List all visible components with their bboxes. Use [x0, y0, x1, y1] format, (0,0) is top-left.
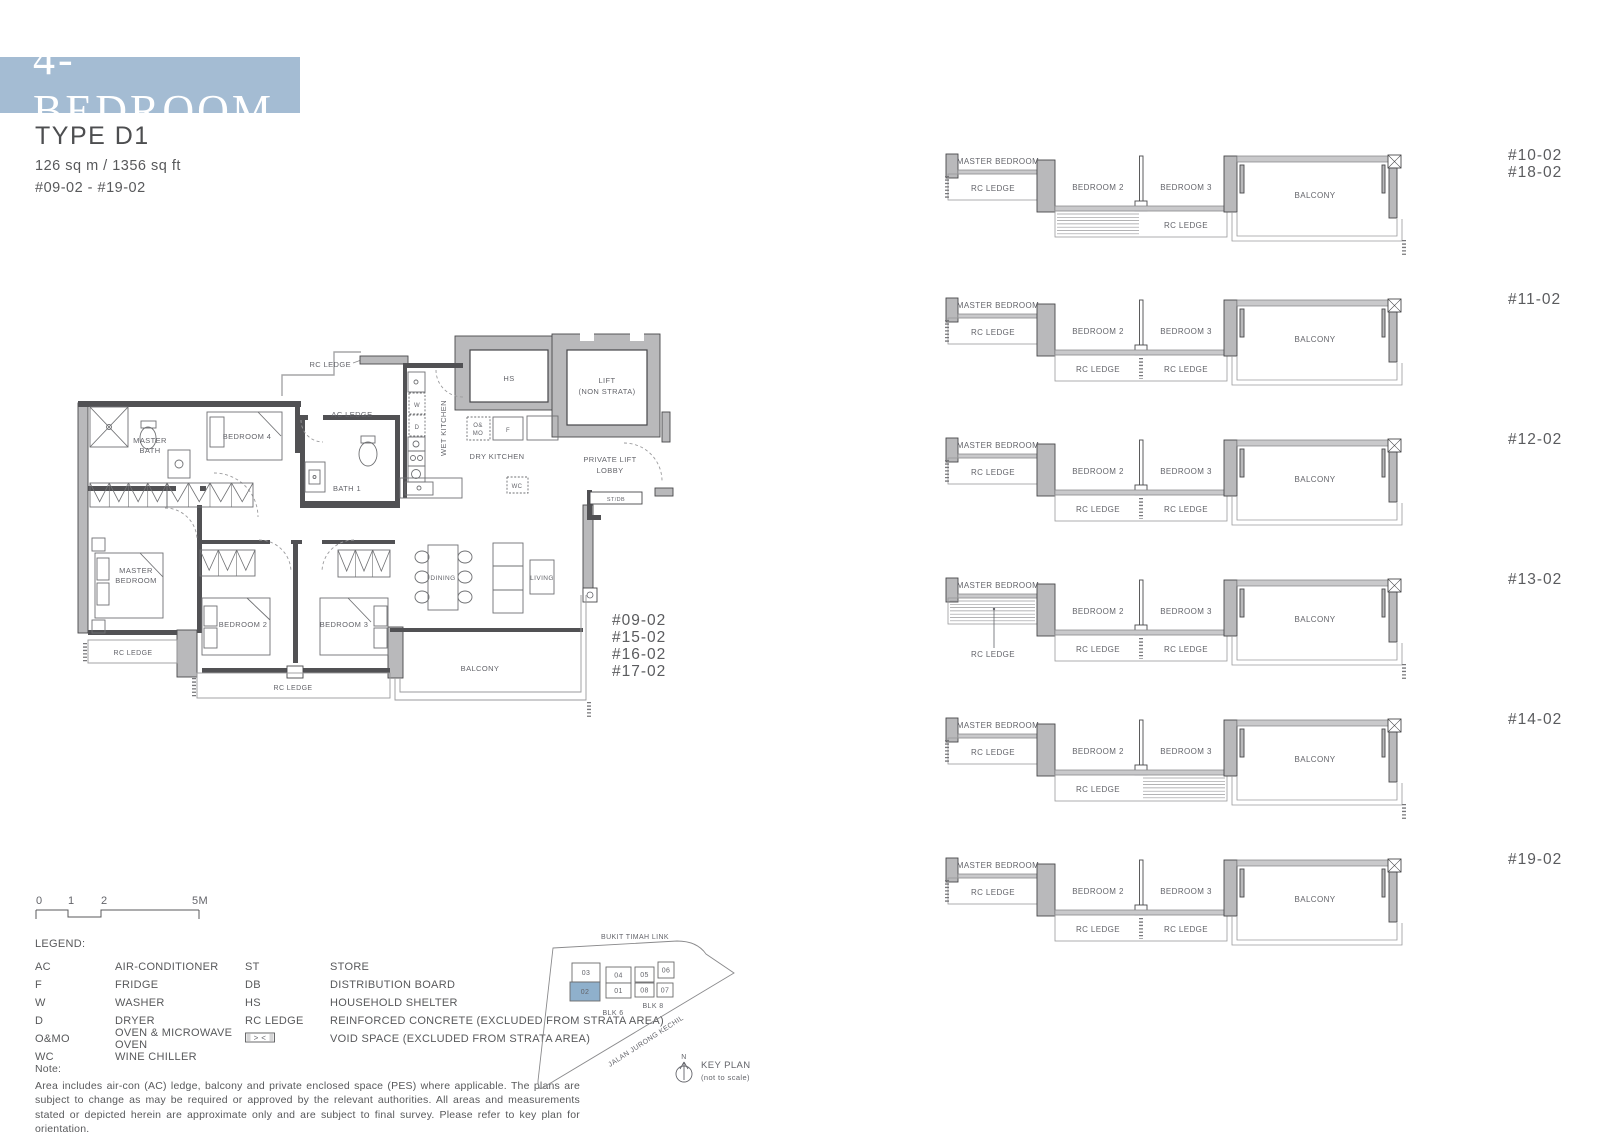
keyplan-unit-label: 08 [640, 988, 649, 995]
legend-desc: AIR-CONDITIONER [115, 961, 219, 973]
ledge-strip-diagram: MASTER BEDROOMRC LEDGEBEDROOM 2BEDROOM 3… [930, 140, 1445, 265]
keyplan-unit-label: 02 [581, 989, 590, 996]
toilet [359, 442, 377, 466]
room-label-living: LIVING [530, 575, 554, 582]
main-floorplan: RC LEDGEAC LEDGEHSLIFT(NON STRATA)WET KI… [65, 330, 695, 720]
strip-label-bedroom3: BEDROOM 3 [1160, 183, 1212, 192]
ac-ledge-outline [282, 352, 361, 396]
room-label-oven-1: O& [473, 423, 482, 429]
legend-row: O&MOOVEN & MICROWAVE OVEN [35, 1030, 265, 1048]
strip-unit-numbers: #12-02 [1508, 432, 1562, 449]
strip-label-master-bedroom: MASTER BEDROOM [957, 861, 1040, 870]
legend-row: WWASHER [35, 994, 265, 1012]
room-label-dryer: D [415, 425, 420, 431]
strip-label-bedroom2: BEDROOM 2 [1072, 183, 1124, 192]
legend-desc: FRIDGE [115, 979, 158, 991]
floorplan-page: 4-BEDROOM TYPE D1 126 sq m / 1356 sq ft … [0, 0, 1600, 1133]
legend-term: D [35, 1015, 115, 1027]
keyplan-unit-label: 01 [614, 988, 623, 995]
room-label-dining: DINING [430, 575, 455, 582]
room-label-master-bath-1: MASTER [133, 436, 167, 445]
type-label: TYPE D1 [35, 122, 150, 151]
strip-label-master-bedroom: MASTER BEDROOM [957, 441, 1040, 450]
plan-type-banner: 4-BEDROOM [0, 57, 300, 113]
strip-label-bedroom3: BEDROOM 3 [1160, 327, 1212, 336]
vanity [168, 450, 190, 478]
strip-label-rc-ledge: RC LEDGE [1164, 925, 1208, 934]
north-compass [676, 1062, 692, 1082]
strip-label-rc-ledge: RC LEDGE [1076, 645, 1120, 654]
scale-tick: 1 [68, 895, 75, 907]
room-label-bath-1: BATH 1 [333, 484, 361, 493]
room-label-rc-ledge-mid: RC LEDGE [274, 685, 313, 692]
legend-desc: STORE [330, 961, 369, 973]
ledge-strip-diagram: MASTER BEDROOMRC LEDGEBEDROOM 2BEDROOM 3… [930, 844, 1445, 969]
keyplan-unit-label: 05 [640, 972, 649, 979]
sofa [493, 543, 523, 613]
strip-label-balcony: BALCONY [1294, 755, 1335, 764]
room-label-wine-chiller: WC [512, 484, 523, 490]
strip-label-rc-ledge: RC LEDGE [971, 468, 1015, 477]
room-label-balcony: BALCONY [461, 664, 500, 673]
room-label-lift-1: LIFT [598, 376, 615, 385]
legend-term: AC [35, 961, 115, 973]
strip-label-rc-ledge: RC LEDGE [971, 748, 1015, 757]
strip-label-bedroom3: BEDROOM 3 [1160, 887, 1212, 896]
room-label-private-lift-lobby-2: LOBBY [596, 466, 623, 475]
blk-6-label: BLK 6 [602, 1010, 623, 1017]
north-label: N [681, 1054, 686, 1061]
strip-label-rc-ledge: RC LEDGE [1076, 785, 1120, 794]
legend-desc: DRYER [115, 1015, 155, 1027]
legend-term: W [35, 997, 115, 1009]
key-plan: 0304050602010807 BUKIT TIMAH LINKJALAN J… [505, 912, 775, 1117]
strip-label-bedroom3: BEDROOM 3 [1160, 607, 1212, 616]
strip-unit-numbers: #10-02#18-02 [1508, 148, 1562, 181]
legend-desc: WASHER [115, 997, 165, 1009]
strip-unit-numbers: #13-02 [1508, 572, 1562, 589]
legend: LEGEND: ACAIR-CONDITIONERFFRIDGEWWASHERD… [35, 938, 85, 957]
vanity [305, 462, 325, 492]
legend-heading: LEGEND: [35, 938, 85, 950]
note-body: Area includes air-con (AC) ledge, balcon… [35, 1079, 580, 1133]
strip-label-master-bedroom: MASTER BEDROOM [957, 721, 1040, 730]
strip-label-rc-ledge: RC LEDGE [971, 888, 1015, 897]
strip-label-rc-ledge: RC LEDGE [1076, 365, 1120, 374]
legend-row: ACAIR-CONDITIONER [35, 958, 265, 976]
bedroom2-door-arc [259, 540, 291, 572]
corridor-door-arc [214, 473, 258, 517]
road-label-bukit-timah-link: BUKIT TIMAH LINK [601, 934, 669, 941]
legend-desc: HOUSEHOLD SHELTER [330, 997, 458, 1009]
column [388, 627, 403, 678]
room-label-bedroom-3: BEDROOM 3 [320, 620, 369, 629]
room-label-washer: W [414, 403, 420, 409]
void-space-symbol: > < [245, 1032, 330, 1046]
keyplan-title: KEY PLAN [701, 1060, 751, 1071]
keyplan-unit-label: 06 [662, 968, 671, 975]
room-label-fridge: F [506, 428, 510, 434]
room-label-master-bedroom-1: MASTER [119, 566, 153, 575]
ledge-strip-diagram: MASTER BEDROOMRC LEDGEBEDROOM 2BEDROOM 3… [930, 704, 1445, 829]
strip-label-rc-ledge: RC LEDGE [1164, 645, 1208, 654]
svg-text:> <: > < [254, 1034, 267, 1043]
unit-number: #16-02 [612, 646, 666, 663]
strip-label-master-bedroom: MASTER BEDROOM [957, 301, 1040, 310]
area-label: 126 sq m / 1356 sq ft [35, 158, 181, 174]
strip-label-rc-ledge: RC LEDGE [1076, 925, 1120, 934]
strip-label-rc-ledge: RC LEDGE [1164, 221, 1208, 230]
room-label-lift-2: (NON STRATA) [578, 387, 635, 396]
hob [408, 437, 425, 451]
strip-label-bedroom2: BEDROOM 2 [1072, 607, 1124, 616]
room-label-hs: HS [503, 374, 514, 383]
room-label-st-db: ST/DB [607, 497, 625, 503]
legend-term: DB [245, 979, 330, 991]
legend-term: O&MO [35, 1033, 115, 1045]
strip-label-master-bedroom: MASTER BEDROOM [957, 157, 1040, 166]
column [177, 630, 197, 677]
keyplan-unit-label: 03 [582, 970, 591, 977]
blk-8-label: BLK 8 [642, 1003, 663, 1010]
room-label-bedroom-2: BEDROOM 2 [219, 620, 268, 629]
strip-label-rc-ledge: RC LEDGE [971, 184, 1015, 193]
scale-tick: 5M [192, 895, 208, 907]
note: Note: Area includes air-con (AC) ledge, … [35, 1062, 580, 1133]
strip-label-bedroom3: BEDROOM 3 [1160, 747, 1212, 756]
scale-bar: 0125M [35, 895, 225, 925]
legend-desc: DISTRIBUTION BOARD [330, 979, 455, 991]
balcony-railing [395, 595, 586, 700]
strip-label-bedroom2: BEDROOM 2 [1072, 887, 1124, 896]
strip-unit-numbers: #14-02 [1508, 712, 1562, 729]
wardrobes [90, 483, 390, 577]
note-heading: Note: [35, 1062, 580, 1077]
scale-tick: 2 [101, 895, 108, 907]
unit-number: #15-02 [612, 629, 666, 646]
strip-unit-numbers: #11-02 [1508, 292, 1561, 309]
strip-label-balcony: BALCONY [1294, 335, 1335, 344]
keyplan-subtitle: (not to scale) [701, 1073, 750, 1082]
strip-label-rc-ledge: RC LEDGE [1164, 505, 1208, 514]
legend-term: ST [245, 961, 330, 973]
banner-title: 4-BEDROOM [0, 34, 300, 136]
ledge-strip-diagram: MASTER BEDROOMRC LEDGEBEDROOM 2BEDROOM 3… [930, 424, 1445, 549]
strip-label-bedroom2: BEDROOM 2 [1072, 747, 1124, 756]
strip-label-rc-ledge: RC LEDGE [971, 650, 1015, 659]
strip-unit-numbers: #19-02 [1508, 852, 1562, 869]
strip-label-bedroom3: BEDROOM 3 [1160, 467, 1212, 476]
master-bedroom-door-arc [165, 508, 197, 540]
room-label-ac-ledge: AC LEDGE [331, 410, 372, 419]
room-label-master-bedroom-2: BEDROOM [115, 576, 157, 585]
furniture [90, 372, 558, 655]
unit-number: #09-02 [612, 612, 666, 629]
strip-label-balcony: BALCONY [1294, 191, 1335, 200]
room-label-oven-2: MO [473, 431, 483, 437]
ledge-strip-diagram: MASTER BEDROOMRC LEDGEBEDROOM 2BEDROOM 3… [930, 284, 1445, 409]
scale-tick: 0 [36, 895, 43, 907]
ledge-strip-diagram: MASTER BEDROOMRC LEDGEBEDROOM 2BEDROOM 3… [930, 564, 1445, 689]
keyplan-unit-label: 07 [661, 988, 670, 995]
room-label-rc-ledge-left: RC LEDGE [114, 650, 153, 657]
room-label-bedroom-4: BEDROOM 4 [223, 432, 272, 441]
legend-term: RC LEDGE [245, 1015, 330, 1027]
room-label-wet-kitchen: WET KITCHEN [439, 400, 448, 456]
keyplan-unit-label: 04 [614, 973, 623, 980]
room-label-rc-ledge-top: RC LEDGE [309, 360, 351, 369]
legend-desc: OVEN & MICROWAVE OVEN [115, 1027, 265, 1051]
legend-term: HS [245, 997, 330, 1009]
unit-number: #17-02 [612, 663, 666, 680]
strip-label-master-bedroom: MASTER BEDROOM [957, 581, 1040, 590]
strip-label-balcony: BALCONY [1294, 895, 1335, 904]
strip-label-rc-ledge: RC LEDGE [1076, 505, 1120, 514]
unit-range-label: #09-02 - #19-02 [35, 180, 146, 196]
strip-label-rc-ledge: RC LEDGE [1164, 365, 1208, 374]
strip-label-rc-ledge: RC LEDGE [971, 328, 1015, 337]
bed [95, 553, 163, 618]
room-label-private-lift-lobby-1: PRIVATE LIFT [583, 455, 636, 464]
room-label-dry-kitchen: DRY KITCHEN [470, 452, 525, 461]
strip-label-bedroom2: BEDROOM 2 [1072, 467, 1124, 476]
unit-number-stack: #09-02#15-02#16-02#17-02 [612, 612, 666, 680]
room-label-master-bath-2: BATH [139, 446, 160, 455]
legend-row: FFRIDGE [35, 976, 265, 994]
legend-term: F [35, 979, 115, 991]
strip-label-balcony: BALCONY [1294, 475, 1335, 484]
strip-label-bedroom2: BEDROOM 2 [1072, 327, 1124, 336]
strip-label-balcony: BALCONY [1294, 615, 1335, 624]
